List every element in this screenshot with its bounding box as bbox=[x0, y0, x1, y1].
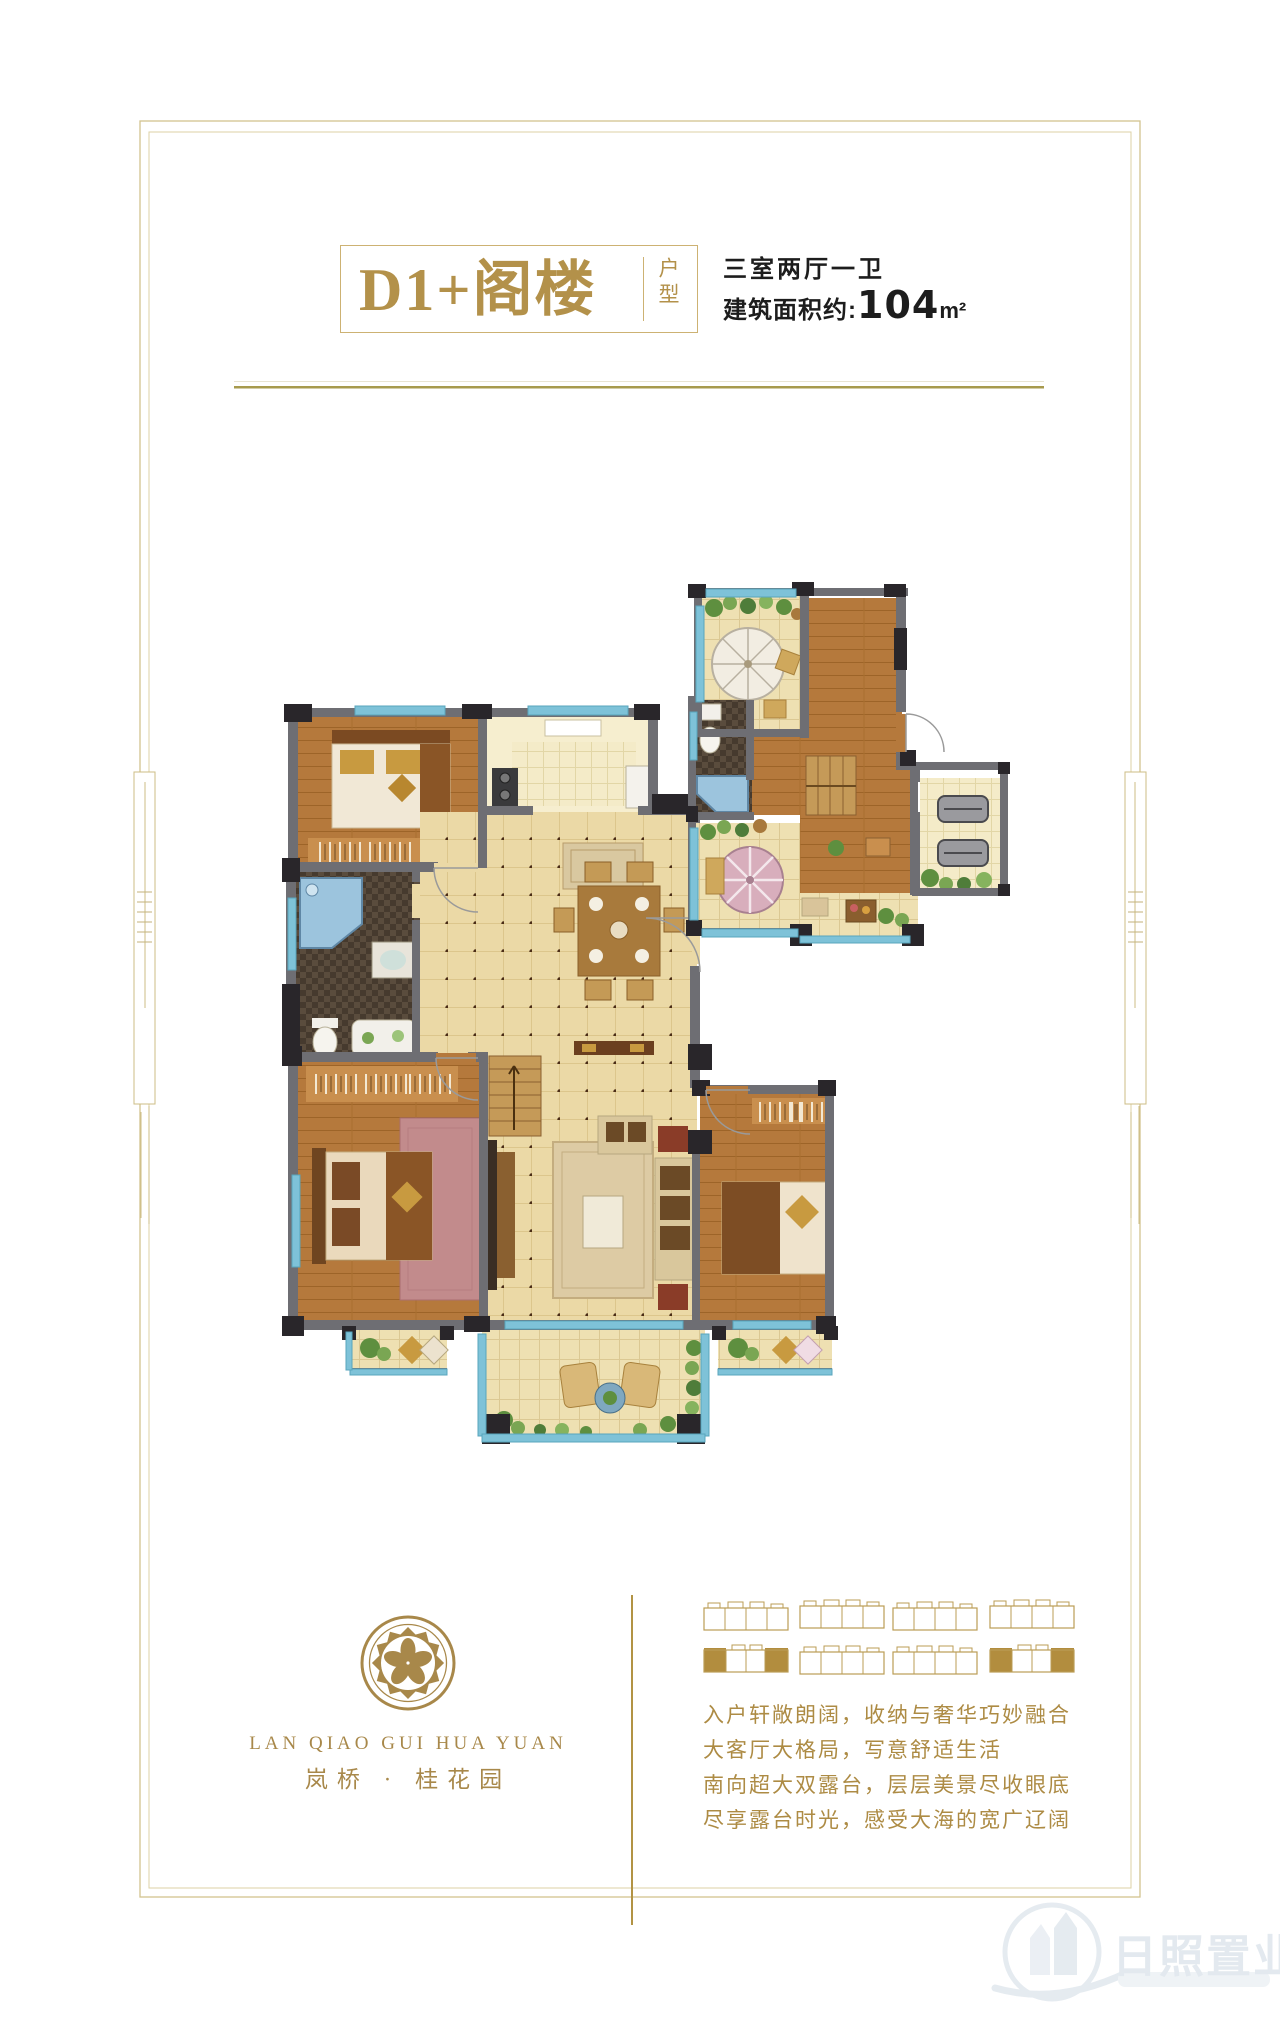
area-label: 建筑面积约: bbox=[723, 290, 857, 325]
selling-point-line: 南向超大双露台，层层美景尽收眼底 bbox=[703, 1768, 1063, 1803]
attic-terrace-pink bbox=[696, 819, 800, 931]
attic-gym bbox=[920, 778, 1002, 892]
selling-point-line: 入户轩敞朗阔，收纳与奢华巧妙融合 bbox=[703, 1698, 1063, 1733]
area-unit: m² bbox=[939, 298, 966, 324]
header-divider-line bbox=[234, 381, 1044, 389]
selling-point-line: 尽享露台时光，感受大海的宽广辽阔 bbox=[703, 1803, 1063, 1838]
siteplan-row-1 bbox=[704, 1600, 1074, 1630]
attic-bathroom bbox=[695, 700, 752, 815]
balcony-main bbox=[482, 1330, 705, 1440]
frame-ornament-right bbox=[1125, 772, 1146, 1224]
siteplan-row-2 bbox=[704, 1645, 1074, 1674]
area-value: 104 bbox=[857, 283, 939, 327]
selling-points: 入户轩敞朗阔，收纳与奢华巧妙融合 大客厅大格局，写意舒适生活 南向超大双露台，层… bbox=[703, 1698, 1063, 1838]
area-spec: 建筑面积约: 104 m² bbox=[723, 283, 966, 327]
master-bedroom bbox=[298, 1062, 487, 1324]
plum-blossom-medallion-icon bbox=[372, 1627, 444, 1699]
floorplan-poster: D1+阁楼 户型 三室两厅一卫 建筑面积约: 104 m² LAN QIAO G… bbox=[0, 0, 1280, 2020]
selling-point-line: 大客厅大格局，写意舒适生活 bbox=[703, 1733, 1063, 1768]
room-spec: 三室两厅一卫 bbox=[723, 249, 885, 284]
dining-area bbox=[420, 812, 697, 1056]
unit-title: D1+阁楼 bbox=[359, 252, 597, 326]
attic-floor-plan bbox=[686, 582, 1010, 946]
attic-terrace-bottom bbox=[796, 893, 918, 939]
frame-ornament-left bbox=[134, 772, 155, 1224]
brand-name-cn: 岚桥 · 桂花园 bbox=[168, 1760, 648, 1794]
unit-type-label: 户型 bbox=[643, 257, 683, 321]
watermark-text: 日照置业网 bbox=[1112, 1920, 1280, 1985]
building-circle-icon bbox=[995, 1905, 1128, 1999]
bathroom bbox=[295, 872, 420, 1060]
living-room bbox=[487, 1056, 697, 1326]
brand-name-en: LAN QIAO GUI HUA YUAN bbox=[168, 1733, 648, 1755]
bedroom-right bbox=[700, 1092, 833, 1324]
kitchen bbox=[487, 716, 655, 812]
balcony-left bbox=[350, 1330, 448, 1372]
balcony-right bbox=[718, 1330, 832, 1372]
unit-title-box: D1+阁楼 户型 bbox=[340, 245, 698, 333]
attic-doors bbox=[896, 714, 944, 752]
brand-medallion bbox=[362, 1617, 454, 1709]
